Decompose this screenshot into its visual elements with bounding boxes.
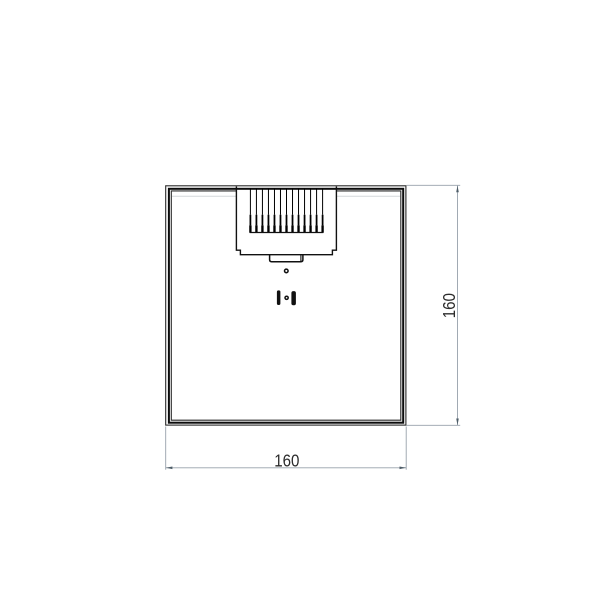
svg-text:160: 160 (439, 293, 460, 318)
svg-text:160: 160 (274, 450, 299, 471)
